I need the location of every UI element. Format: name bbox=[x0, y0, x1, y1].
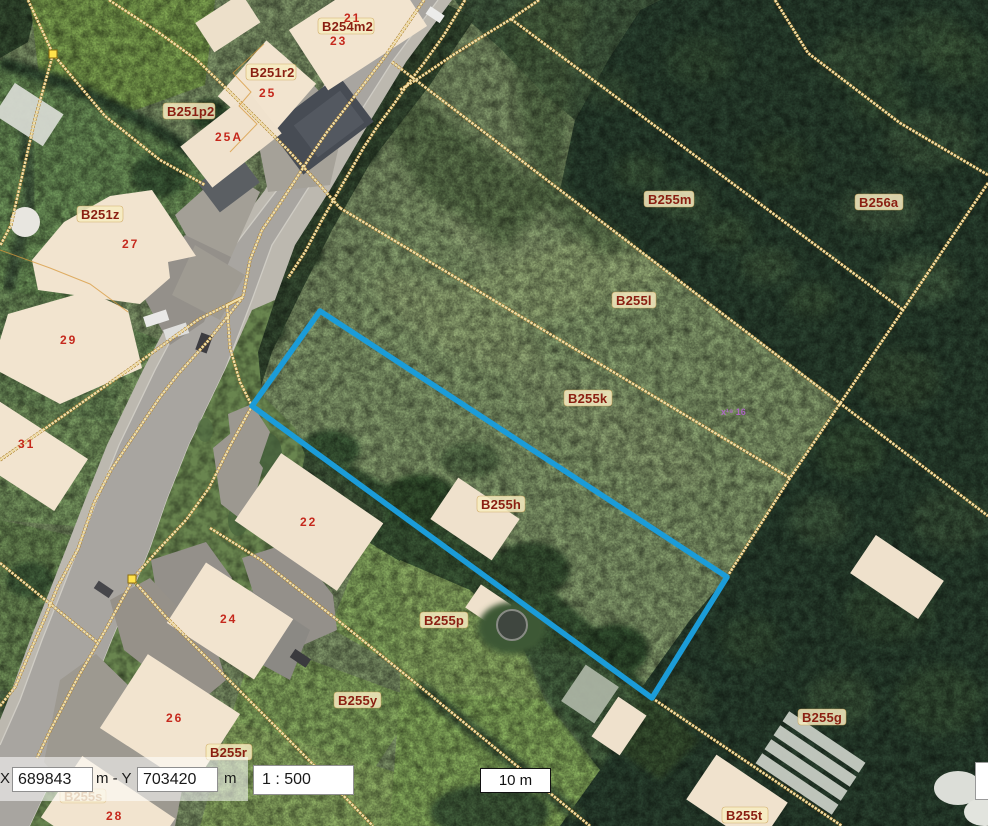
svg-text:B251p2: B251p2 bbox=[167, 104, 214, 119]
svg-text:B251r2: B251r2 bbox=[250, 65, 295, 80]
svg-text:x¹⁹ 16: x¹⁹ 16 bbox=[721, 407, 746, 417]
svg-text:B256a: B256a bbox=[859, 195, 899, 210]
svg-text:25: 25 bbox=[259, 86, 276, 100]
svg-text:B255p: B255p bbox=[424, 613, 464, 628]
svg-text:29: 29 bbox=[60, 333, 77, 347]
svg-text:31: 31 bbox=[18, 437, 35, 451]
svg-text:22: 22 bbox=[300, 515, 317, 529]
svg-text:B255t: B255t bbox=[726, 808, 763, 823]
svg-text:B255h: B255h bbox=[481, 497, 521, 512]
svg-text:23: 23 bbox=[330, 34, 347, 48]
svg-text:25A: 25A bbox=[215, 130, 243, 144]
svg-text:26: 26 bbox=[166, 711, 183, 725]
svg-text:24: 24 bbox=[220, 612, 237, 626]
svg-text:28: 28 bbox=[106, 809, 123, 823]
svg-text:B255m: B255m bbox=[648, 192, 692, 207]
svg-text:B255l: B255l bbox=[616, 293, 652, 308]
svg-text:B255k: B255k bbox=[568, 391, 608, 406]
svg-text:21: 21 bbox=[344, 11, 361, 25]
svg-text:B251z: B251z bbox=[81, 207, 120, 222]
svg-text:27: 27 bbox=[122, 237, 139, 251]
svg-text:B255y: B255y bbox=[338, 693, 378, 708]
svg-text:B255g: B255g bbox=[802, 710, 842, 725]
